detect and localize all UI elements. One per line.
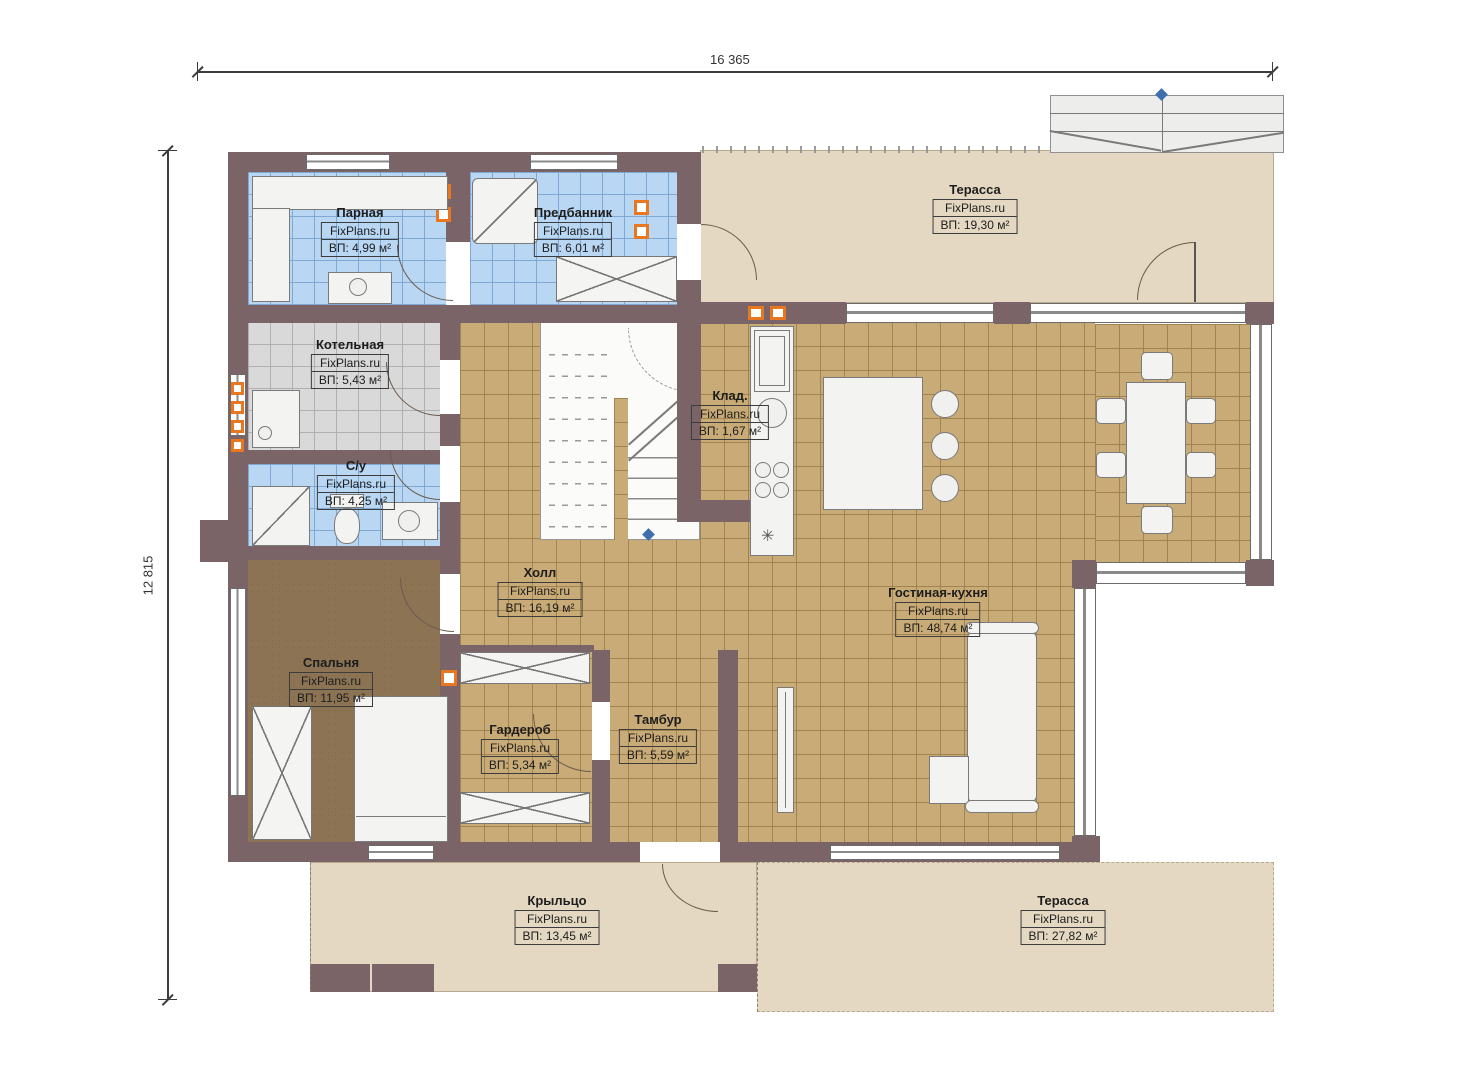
- exterior-stair-tread: [1050, 131, 1284, 132]
- room-watermark: FixPlans.ru: [897, 603, 980, 619]
- stove-burner: [773, 462, 789, 478]
- bench-cabinet: [556, 256, 677, 302]
- floor-drain-icon: ✳: [761, 526, 774, 546]
- bed: [354, 696, 448, 842]
- room-watermark: FixPlans.ru: [312, 355, 388, 371]
- entrance-door-gap: [640, 842, 720, 862]
- window-bedroom-south: [368, 845, 434, 860]
- toilet-bowl: [334, 508, 360, 544]
- sauna-bench: [252, 208, 290, 302]
- room-label-kladovaya: Клад. FixPlans.ruВП: 1,67 м²: [691, 388, 769, 440]
- exterior-stair-center: [1162, 95, 1163, 153]
- room-watermark: FixPlans.ru: [934, 200, 1017, 216]
- dimension-line-left: [167, 150, 169, 1000]
- room-label-parnaya: Парная FixPlans.ruВП: 4,99 м²: [321, 205, 399, 257]
- room-area: ВП: 5,34 м²: [482, 756, 558, 773]
- wardrobe: [460, 792, 590, 824]
- room-name: С/у: [317, 458, 395, 473]
- dining-chair: [1096, 452, 1126, 478]
- room-watermark: FixPlans.ru: [620, 730, 696, 746]
- room-watermark: FixPlans.ru: [290, 673, 372, 689]
- room-watermark: FixPlans.ru: [318, 476, 394, 492]
- room-name: Терасса: [933, 182, 1018, 197]
- room-watermark: FixPlans.ru: [516, 911, 599, 927]
- room-label-terrace-bottom: Терасса FixPlans.ruВП: 27,82 м²: [1021, 893, 1106, 945]
- wall-pilaster: [200, 520, 228, 562]
- wall-nook-se-corner: [1246, 560, 1274, 586]
- dimension-line-top: [197, 71, 1273, 73]
- room-label-gostinaya: Гостиная-кухня FixPlans.ruВП: 48,74 м²: [888, 585, 988, 637]
- porch-terrace-divider-dashed: [757, 862, 758, 1012]
- wall-living-ne-corner: [1072, 560, 1096, 588]
- window-dining-north: [1030, 303, 1246, 323]
- room-name: Клад.: [691, 388, 769, 403]
- room-area: ВП: 4,99 м²: [322, 239, 398, 256]
- room-label-terrace-top: Терасса FixPlans.ruВП: 19,30 м²: [933, 182, 1018, 234]
- room-watermark: FixPlans.ru: [535, 223, 611, 239]
- room-watermark: FixPlans.ru: [1022, 911, 1105, 927]
- bar-stool: [931, 390, 959, 418]
- room-name: Гостиная-кухня: [888, 585, 988, 600]
- room-name: Предбанник: [534, 205, 612, 220]
- dining-chair: [1141, 352, 1173, 380]
- sofa-long-section: [967, 632, 1037, 802]
- wall-garderob-tambur: [592, 650, 610, 702]
- window: [306, 154, 390, 170]
- room-watermark: FixPlans.ru: [692, 406, 768, 422]
- window: [530, 154, 618, 170]
- room-label-tambur: Тамбур FixPlans.ruВП: 5,59 м²: [619, 712, 697, 764]
- exterior-stair: [1050, 95, 1284, 153]
- vent-shaft: [231, 382, 244, 395]
- stove-burner: [755, 482, 771, 498]
- room-area: ВП: 27,82 м²: [1022, 927, 1105, 944]
- porch-pillar: [718, 964, 757, 992]
- vent-shaft: [231, 420, 244, 433]
- porch-boundary-dashed: [310, 862, 311, 992]
- wall-sauna-south: [228, 305, 700, 323]
- bar-stool: [931, 432, 959, 460]
- wall-predbannik-terrace: [677, 152, 701, 224]
- room-name: Холл: [498, 565, 583, 580]
- door-leaf: [1194, 242, 1196, 302]
- wall-tambur-east: [718, 650, 738, 844]
- window-living-south: [830, 845, 1060, 860]
- bar-stool: [931, 474, 959, 502]
- sauna-stove-burner: [349, 278, 367, 296]
- wardrobe: [460, 652, 590, 684]
- vent-shaft: [770, 306, 786, 320]
- vent-shaft: [634, 200, 649, 215]
- dining-table: [1126, 382, 1186, 504]
- staircase-spine: [614, 398, 628, 540]
- room-area: ВП: 19,30 м²: [934, 216, 1017, 233]
- room-area: ВП: 16,19 м²: [499, 599, 582, 616]
- room-area: ВП: 5,59 м²: [620, 746, 696, 763]
- wall-living-se-corner: [1072, 836, 1100, 862]
- room-area: ВП: 48,74 м²: [897, 619, 980, 636]
- wardrobe: [252, 706, 312, 840]
- boiler-gauge: [258, 426, 272, 440]
- sofa-armrest: [965, 800, 1039, 813]
- window-bedroom-west: [230, 588, 246, 796]
- wall-nook-ne-corner: [1246, 302, 1274, 324]
- floor-plan: 16 365 12 815: [0, 0, 1474, 1080]
- room-watermark: FixPlans.ru: [482, 740, 558, 756]
- door-gap: [440, 446, 460, 502]
- stove-burner: [773, 482, 789, 498]
- room-area: ВП: 1,67 м²: [692, 422, 768, 439]
- shower: [252, 486, 310, 546]
- room-area: ВП: 13,45 м²: [516, 927, 599, 944]
- room-area: ВП: 4,25 м²: [318, 492, 394, 509]
- dimension-top-label: 16 365: [710, 52, 750, 67]
- fridge-inner: [759, 336, 785, 386]
- window-living-east: [1074, 588, 1096, 836]
- shower-tray: [472, 178, 538, 244]
- boiler: [252, 390, 300, 448]
- kitchen-island: [823, 377, 923, 510]
- room-watermark: FixPlans.ru: [322, 223, 398, 239]
- window-kitchen: [846, 303, 994, 323]
- room-label-kryltso: Крыльцо FixPlans.ruВП: 13,45 м²: [515, 893, 600, 945]
- room-name: Котельная: [311, 337, 389, 352]
- vent-shaft: [441, 670, 457, 686]
- room-label-predbannik: Предбанник FixPlans.ruВП: 6,01 м²: [534, 205, 612, 257]
- stove-burner: [755, 462, 771, 478]
- dining-chair: [1141, 506, 1173, 534]
- porch-pillar: [372, 964, 434, 992]
- room-name: Спальня: [289, 655, 373, 670]
- bed-pillow-line: [356, 816, 446, 817]
- room-area: ВП: 5,43 м²: [312, 371, 388, 388]
- window-dining-east: [1250, 324, 1272, 560]
- room-label-garderob: Гардероб FixPlans.ruВП: 5,34 м²: [481, 722, 559, 774]
- vent-shaft: [231, 401, 244, 414]
- room-label-kotelnaya: Котельная FixPlans.ruВП: 5,43 м²: [311, 337, 389, 389]
- exterior-stair-tread: [1050, 113, 1284, 114]
- room-label-sanuzel: С/у FixPlans.ruВП: 4,25 м²: [317, 458, 395, 510]
- vent-shaft: [634, 224, 649, 239]
- dining-chair: [1186, 452, 1216, 478]
- terrace-deck-edge: [702, 146, 1092, 153]
- room-label-holl: Холл FixPlans.ruВП: 16,19 м²: [498, 565, 583, 617]
- room-label-spalnya: Спальня FixPlans.ruВП: 11,95 м²: [289, 655, 373, 707]
- door-gap: [592, 702, 610, 760]
- terrace-bottom-floor: [757, 862, 1274, 1012]
- wall-su-spalnya: [228, 546, 440, 560]
- sofa-corner-section: [929, 756, 969, 804]
- vent-shaft: [231, 439, 244, 452]
- dining-chair: [1096, 398, 1126, 424]
- room-name: Парная: [321, 205, 399, 220]
- room-name: Терасса: [1021, 893, 1106, 908]
- dining-chair: [1186, 398, 1216, 424]
- wall-garderob-north: [458, 645, 594, 652]
- wall-north-pillar: [994, 302, 1030, 324]
- washbasin-bowl: [398, 510, 420, 532]
- dimension-left-label: 12 815: [140, 556, 155, 596]
- porch-pillar: [310, 964, 370, 992]
- door-gap: [677, 224, 701, 280]
- window-dining-south: [1096, 562, 1246, 584]
- room-area: ВП: 6,01 м²: [535, 239, 611, 256]
- door-gap: [440, 360, 460, 414]
- wall-garderob-tambur: [592, 760, 610, 844]
- vent-shaft: [748, 306, 764, 320]
- room-watermark: FixPlans.ru: [499, 583, 582, 599]
- room-name: Тамбур: [619, 712, 697, 727]
- room-name: Гардероб: [481, 722, 559, 737]
- room-name: Крыльцо: [515, 893, 600, 908]
- staircase-upper-flight: [542, 334, 614, 534]
- tv-stand-line: [785, 692, 786, 808]
- room-area: ВП: 11,95 м²: [290, 689, 372, 706]
